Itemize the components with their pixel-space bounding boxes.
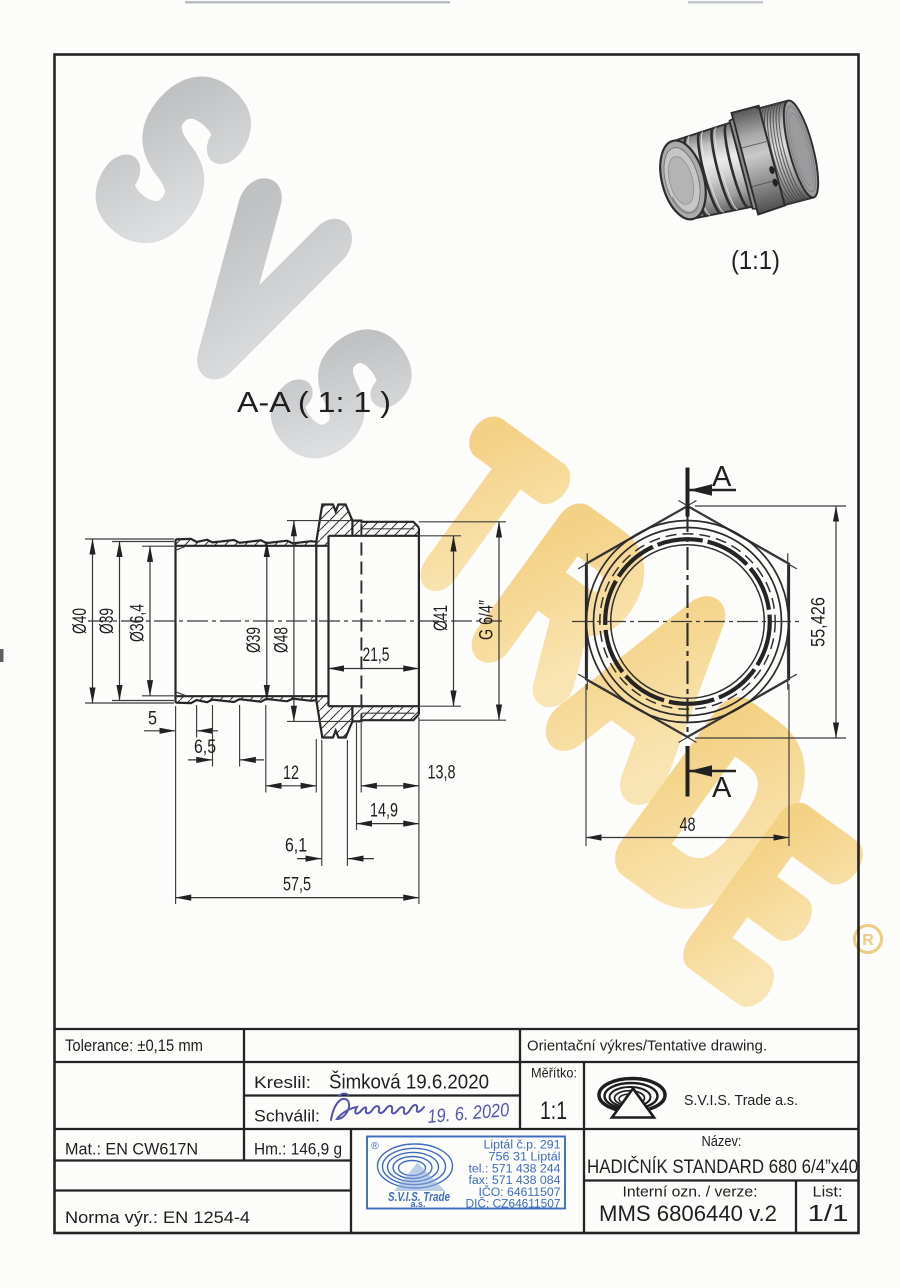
svg-text:Kreslil:: Kreslil: [254, 1074, 311, 1092]
svg-text:MMS 6806440 v.2: MMS 6806440 v.2 [599, 1201, 777, 1226]
svg-text:Mat.: EN CW617N: Mat.: EN CW617N [65, 1141, 198, 1159]
svg-text:21,5: 21,5 [363, 645, 390, 666]
svg-text:Hm.: 146,9 g: Hm.: 146,9 g [254, 1141, 342, 1159]
svg-text:Interní ozn. / verze:: Interní ozn. / verze: [623, 1185, 758, 1201]
svg-text:Norma výr.: EN 1254-4: Norma výr.: EN 1254-4 [65, 1209, 250, 1227]
svg-text:Ø48: Ø48 [271, 627, 292, 653]
svg-text:6,5: 6,5 [194, 737, 216, 758]
svg-text:Ø39: Ø39 [97, 608, 118, 634]
svg-text:tel.: 571 438 244: tel.: 571 438 244 [469, 1163, 562, 1175]
svg-text:Ø39: Ø39 [244, 627, 265, 653]
svg-text:Schválil:: Schválil: [254, 1108, 320, 1126]
svg-text:R: R [862, 932, 874, 949]
svg-text:fax: 571 438 084: fax: 571 438 084 [469, 1175, 562, 1187]
svg-text:14,9: 14,9 [370, 801, 398, 822]
svg-text:S.V.I.S. Trade a.s.: S.V.I.S. Trade a.s. [684, 1092, 798, 1109]
svg-text:1/1: 1/1 [808, 1200, 849, 1226]
svg-text:756 31 Liptál: 756 31 Liptál [489, 1151, 561, 1163]
svg-text:Šimková 19.6.2020: Šimková 19.6.2020 [329, 1071, 489, 1094]
svg-text:List:: List: [813, 1185, 843, 1201]
svg-text:13,8: 13,8 [428, 763, 456, 784]
svg-text:Ø36,4: Ø36,4 [128, 604, 149, 642]
svg-text:48: 48 [680, 815, 696, 836]
svg-text:12: 12 [283, 763, 299, 784]
svg-text:(1:1): (1:1) [731, 245, 780, 275]
svg-text:Liptál č.p. 291: Liptál č.p. 291 [484, 1140, 561, 1152]
svg-text:A: A [712, 461, 732, 493]
svg-text:5: 5 [148, 709, 157, 730]
svg-text:HADIČNÍK STANDARD 680 6/4”x40: HADIČNÍK STANDARD 680 6/4”x40 [587, 1156, 858, 1178]
svg-text:DIČ: CZ64611507: DIČ: CZ64611507 [466, 1198, 561, 1211]
svg-text:57,5: 57,5 [283, 875, 311, 896]
svg-text:Orientační výkres/Tentative dr: Orientační výkres/Tentative drawing. [527, 1038, 767, 1055]
svg-text:G 6/4″: G 6/4″ [477, 600, 498, 640]
svg-text:Měřítko:: Měřítko: [531, 1065, 577, 1081]
svg-text:A-A ( 1: 1 ): A-A ( 1: 1 ) [237, 387, 391, 419]
svg-text:Název:: Název: [702, 1134, 742, 1150]
svg-text:Ø41: Ø41 [431, 605, 452, 631]
svg-text:6,1: 6,1 [285, 836, 307, 857]
svg-text:55,426: 55,426 [809, 597, 830, 647]
svg-text:a.s.: a.s. [410, 1199, 425, 1209]
svg-text:A: A [712, 772, 732, 804]
svg-text:Ø40: Ø40 [70, 608, 91, 634]
svg-text:Tolerance: ±0,15 mm: Tolerance: ±0,15 mm [65, 1037, 203, 1055]
svg-text:®: ® [371, 1140, 379, 1152]
svg-text:IČO: 64611507: IČO: 64611507 [479, 1186, 561, 1199]
svg-text:1:1: 1:1 [540, 1097, 567, 1125]
